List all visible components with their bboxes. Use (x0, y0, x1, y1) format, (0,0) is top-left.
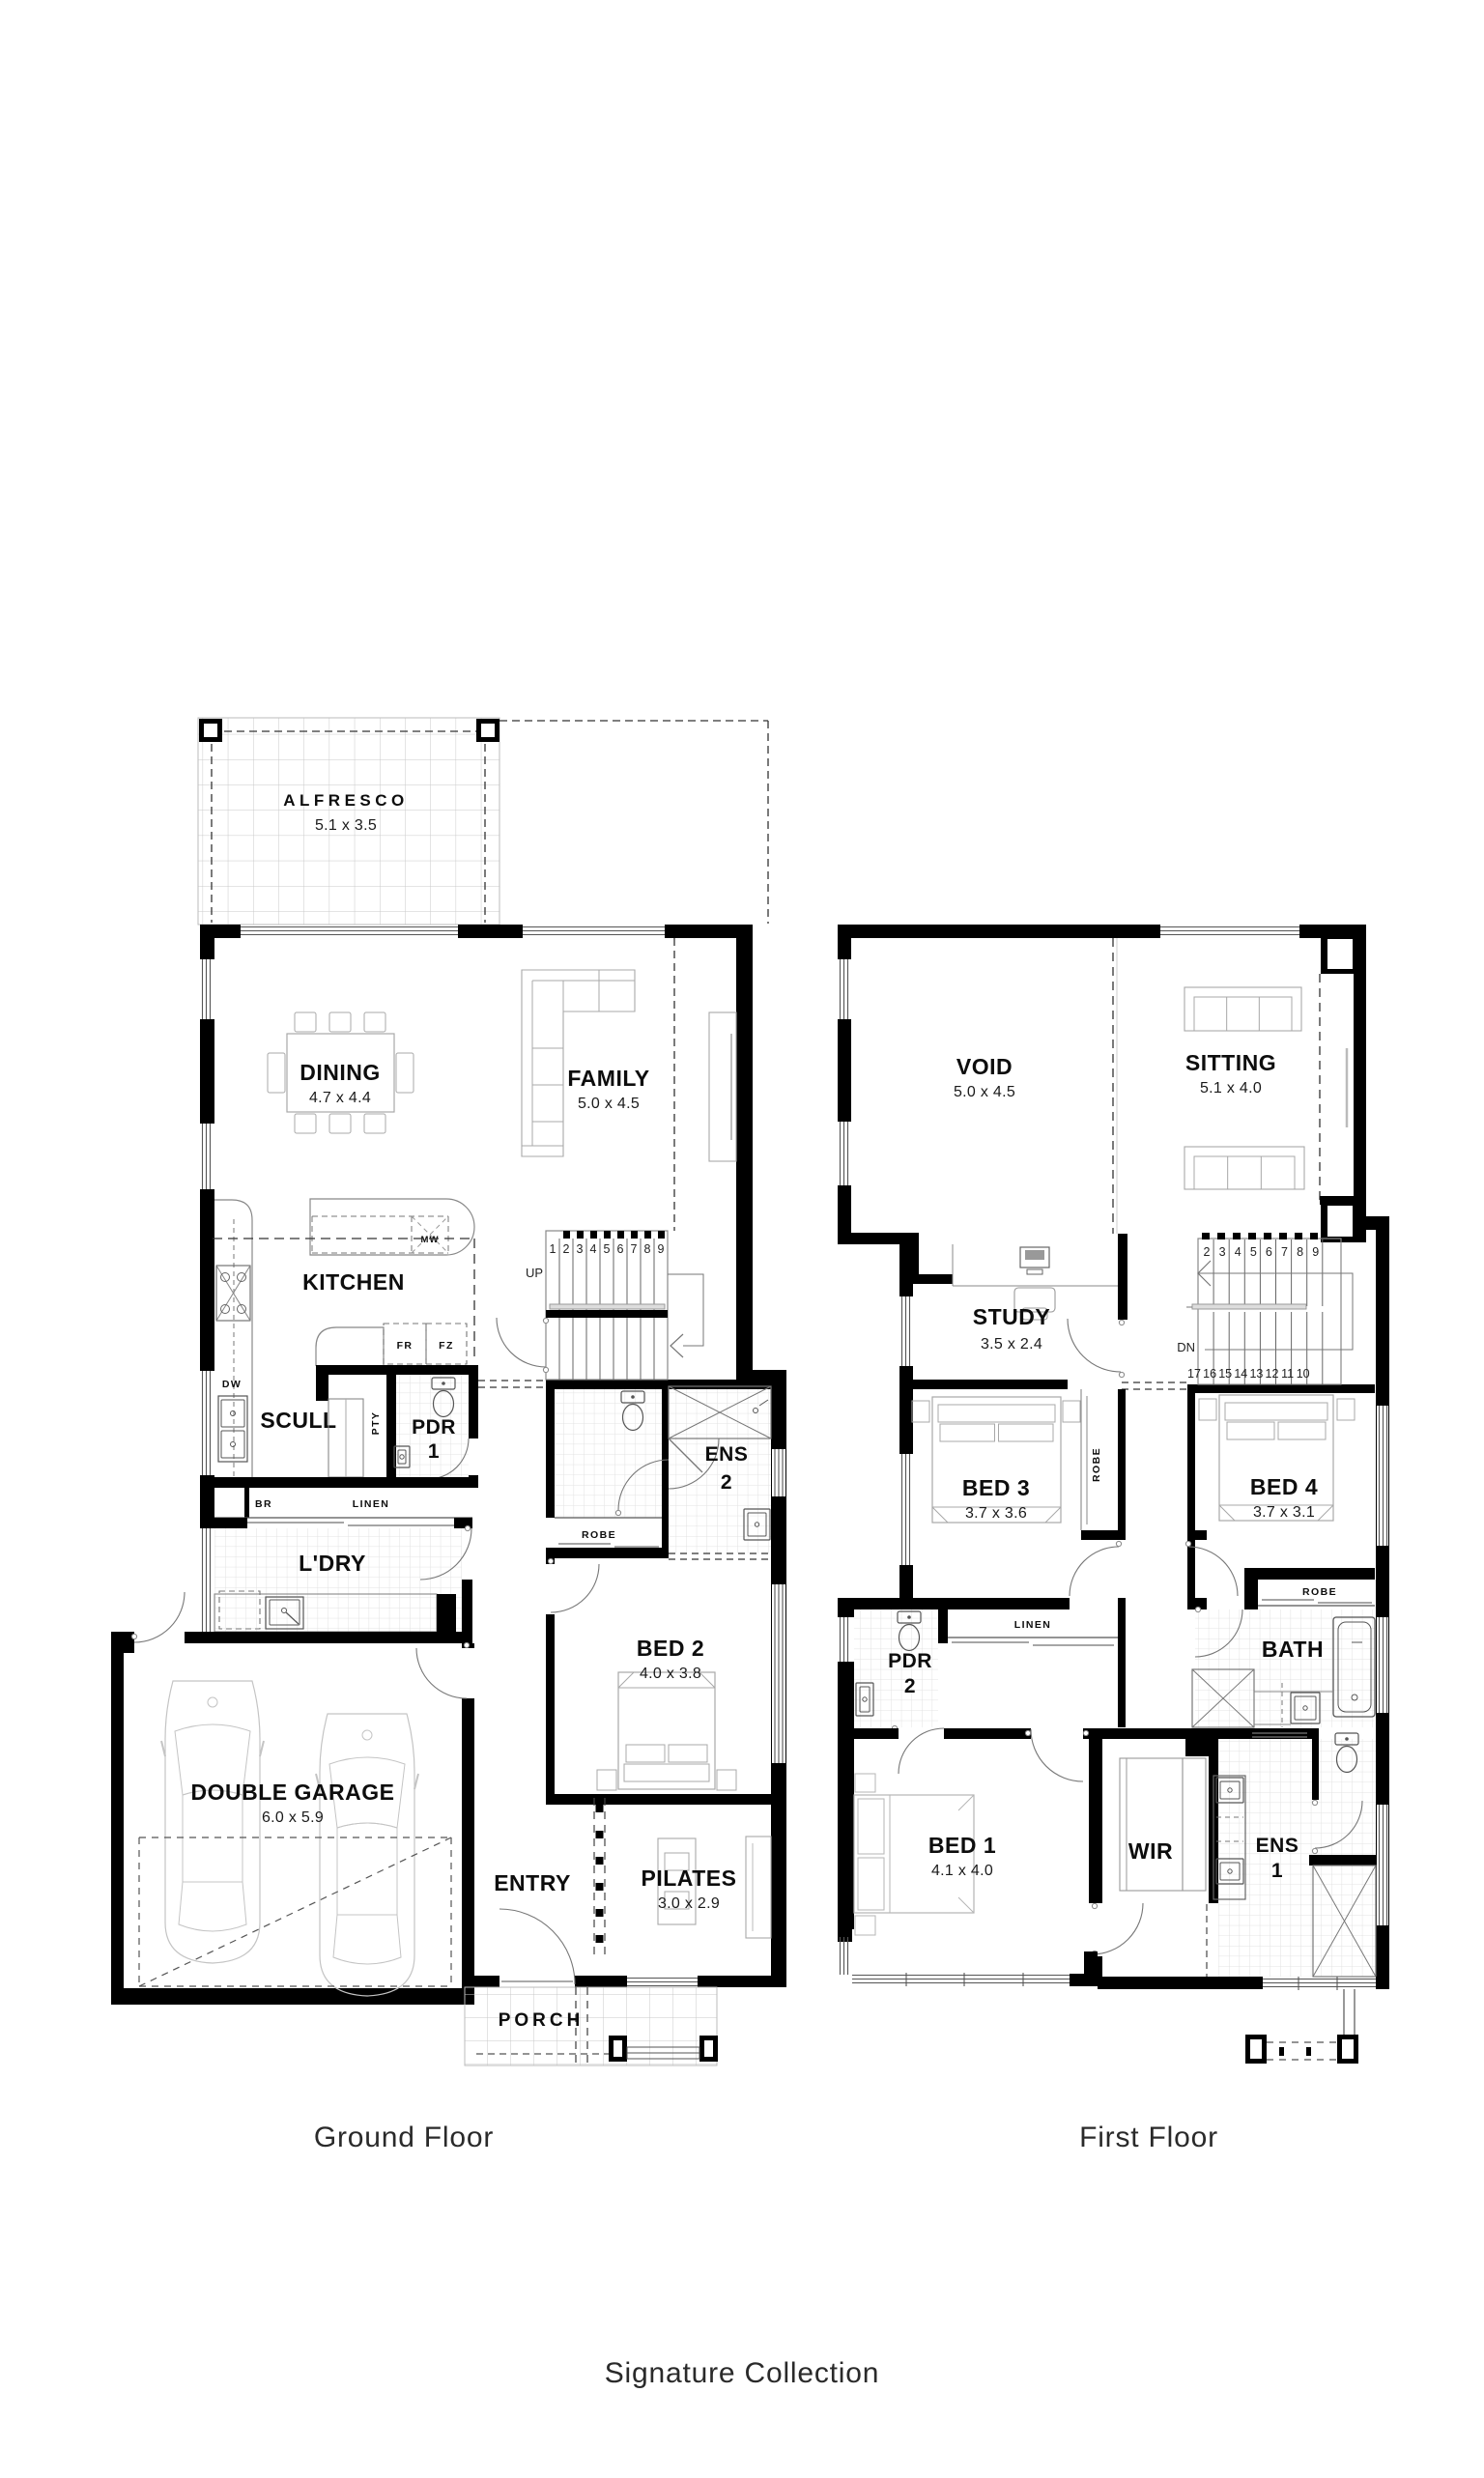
svg-text:8: 8 (1297, 1245, 1303, 1259)
svg-text:PTY: PTY (370, 1411, 382, 1436)
svg-text:DW: DW (222, 1379, 242, 1390)
svg-text:LINEN: LINEN (353, 1498, 390, 1510)
svg-text:BATH: BATH (1262, 1637, 1324, 1662)
svg-text:2: 2 (563, 1242, 570, 1256)
svg-text:13: 13 (1249, 1367, 1263, 1381)
svg-text:1: 1 (1271, 1860, 1283, 1882)
svg-text:ENS: ENS (705, 1443, 749, 1466)
svg-text:3: 3 (1219, 1245, 1226, 1259)
svg-text:4.0 x 3.8: 4.0 x 3.8 (640, 1666, 701, 1682)
svg-text:3.5 x 2.4: 3.5 x 2.4 (981, 1336, 1042, 1353)
svg-text:SITTING: SITTING (1185, 1050, 1276, 1075)
svg-text:5.0 x 4.5: 5.0 x 4.5 (578, 1096, 640, 1112)
svg-text:ROBE: ROBE (1302, 1586, 1337, 1598)
svg-text:PDR: PDR (888, 1650, 932, 1672)
svg-text:12: 12 (1266, 1367, 1279, 1381)
svg-text:Signature Collection: Signature Collection (605, 2357, 880, 2389)
svg-text:6.0 x 5.9: 6.0 x 5.9 (262, 1809, 324, 1826)
svg-text:5: 5 (604, 1242, 611, 1256)
svg-text:PILATES: PILATES (642, 1866, 737, 1891)
svg-text:8: 8 (644, 1242, 651, 1256)
svg-text:First Floor: First Floor (1079, 2122, 1218, 2153)
svg-text:4: 4 (1235, 1245, 1241, 1259)
svg-text:ROBE: ROBE (1091, 1447, 1102, 1482)
svg-text:3.7 x 3.6: 3.7 x 3.6 (965, 1505, 1027, 1522)
svg-text:WIR: WIR (1128, 1838, 1173, 1864)
svg-text:6: 6 (617, 1242, 624, 1256)
svg-text:2: 2 (904, 1675, 916, 1697)
svg-text:Ground Floor: Ground Floor (314, 2122, 494, 2153)
svg-text:PORCH: PORCH (499, 2010, 585, 2031)
svg-text:VOID: VOID (956, 1054, 1013, 1079)
svg-text:DN: DN (1177, 1340, 1195, 1354)
svg-text:ROBE: ROBE (582, 1529, 616, 1541)
svg-text:BED 1: BED 1 (928, 1833, 996, 1858)
svg-text:17: 17 (1187, 1367, 1201, 1381)
svg-text:FAMILY: FAMILY (567, 1066, 649, 1091)
svg-text:SCULL: SCULL (260, 1408, 336, 1433)
svg-text:5.0 x 4.5: 5.0 x 4.5 (954, 1084, 1015, 1100)
svg-text:4.1 x 4.0: 4.1 x 4.0 (931, 1863, 993, 1879)
svg-text:3.0 x 2.9: 3.0 x 2.9 (658, 1895, 720, 1912)
svg-text:7: 7 (631, 1242, 638, 1256)
svg-text:2: 2 (1204, 1245, 1211, 1259)
svg-text:14: 14 (1234, 1367, 1247, 1381)
svg-text:9: 9 (658, 1242, 665, 1256)
svg-text:KITCHEN: KITCHEN (302, 1269, 405, 1295)
svg-text:ENS: ENS (1256, 1835, 1299, 1857)
svg-text:UP: UP (526, 1266, 543, 1280)
svg-text:BED 4: BED 4 (1250, 1474, 1318, 1499)
svg-text:BED 3: BED 3 (962, 1475, 1030, 1500)
svg-text:BED 2: BED 2 (637, 1636, 704, 1661)
svg-text:3.7 x 3.1: 3.7 x 3.1 (1253, 1504, 1315, 1521)
svg-text:PDR: PDR (412, 1416, 456, 1438)
svg-text:LINEN: LINEN (1014, 1619, 1052, 1631)
svg-text:5: 5 (1250, 1245, 1257, 1259)
svg-text:5.1 x 4.0: 5.1 x 4.0 (1200, 1080, 1262, 1097)
svg-text:9: 9 (1312, 1245, 1319, 1259)
svg-text:DOUBLE GARAGE: DOUBLE GARAGE (191, 1780, 395, 1805)
svg-text:4.7 x 4.4: 4.7 x 4.4 (309, 1090, 371, 1106)
svg-text:16: 16 (1203, 1367, 1216, 1381)
svg-text:ALFRESCO: ALFRESCO (283, 791, 409, 810)
svg-text:ENTRY: ENTRY (494, 1870, 571, 1895)
svg-text:11: 11 (1281, 1367, 1294, 1381)
svg-text:BR: BR (255, 1498, 272, 1510)
svg-text:L'DRY: L'DRY (299, 1551, 366, 1576)
svg-text:1: 1 (428, 1440, 440, 1463)
svg-text:6: 6 (1266, 1245, 1272, 1259)
svg-text:15: 15 (1218, 1367, 1232, 1381)
svg-text:FZ: FZ (439, 1340, 454, 1352)
svg-text:1: 1 (550, 1242, 556, 1256)
svg-text:7: 7 (1281, 1245, 1288, 1259)
svg-text:4: 4 (590, 1242, 597, 1256)
svg-text:FR: FR (397, 1340, 414, 1352)
svg-text:5.1 x 3.5: 5.1 x 3.5 (315, 817, 377, 834)
svg-text:10: 10 (1297, 1367, 1310, 1381)
svg-text:STUDY: STUDY (973, 1304, 1050, 1329)
svg-text:MW: MW (421, 1235, 440, 1245)
svg-text:2: 2 (721, 1471, 732, 1494)
svg-text:3: 3 (577, 1242, 584, 1256)
svg-text:DINING: DINING (300, 1060, 381, 1085)
